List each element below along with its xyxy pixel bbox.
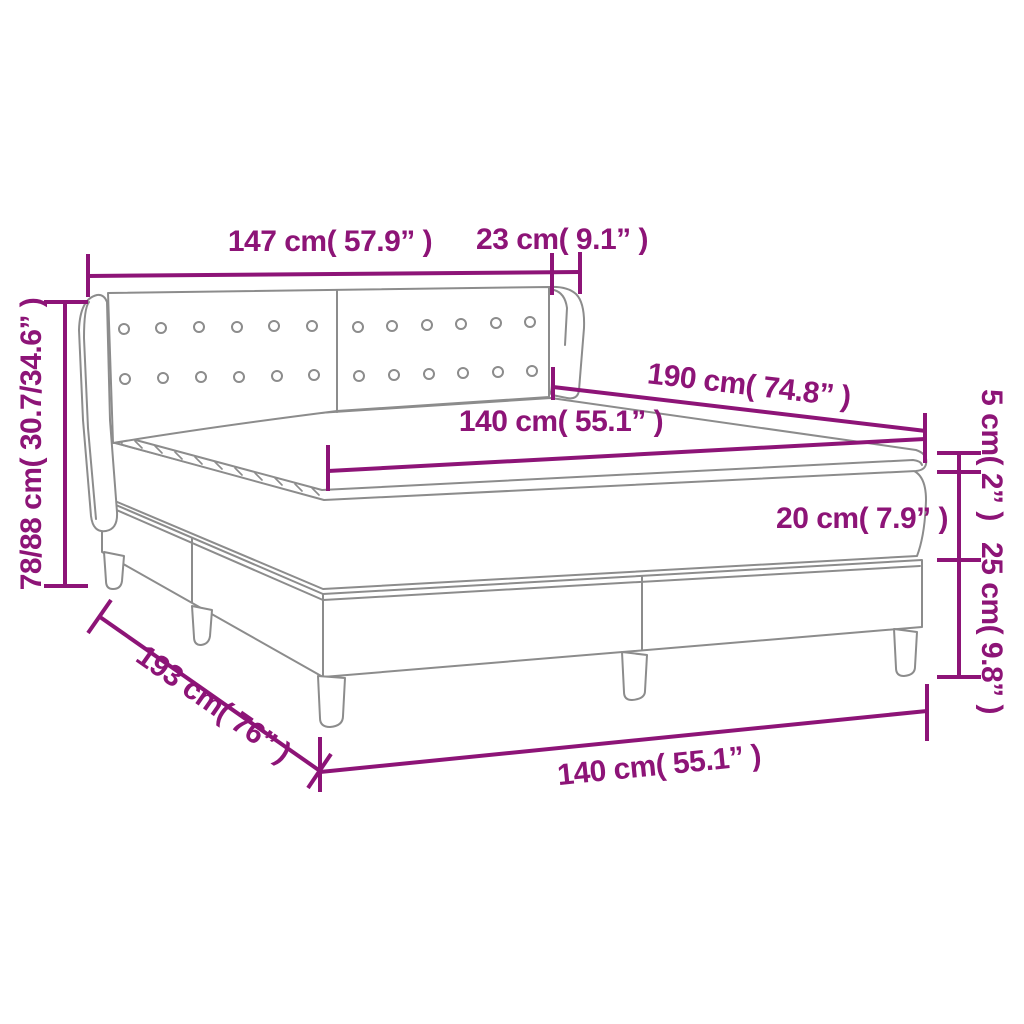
dim-label-topper-thickness: 5 cm( 2” ) (975, 389, 1008, 521)
dim-label-headboard-width: 147 cm( 57.9” ) (228, 225, 432, 258)
dim-label-mattress-thickness: 20 cm( 7.9” ) (776, 502, 948, 535)
dim-headboard-width: 147 cm( 57.9” ) 23 cm( 9.1” ) (88, 223, 648, 297)
bed-leg (622, 652, 647, 700)
dim-label-headboard-side-depth: 23 cm( 9.1” ) (476, 223, 648, 256)
dim-label-base-height: 25 cm( 9.8” ) (975, 542, 1008, 714)
dim-label-mattress-width: 140 cm( 55.1” ) (459, 405, 663, 438)
bed-dimension-diagram: 147 cm( 57.9” ) 23 cm( 9.1” ) 78/88 cm( … (0, 0, 1024, 1024)
bed-leg (894, 629, 917, 676)
dim-bed-height: 78/88 cm( 30.7/34.6” ) (15, 298, 88, 591)
bed-leg (318, 676, 345, 727)
dim-label-bed-height: 78/88 cm( 30.7/34.6” ) (15, 298, 48, 591)
diagram-canvas: 147 cm( 57.9” ) 23 cm( 9.1” ) 78/88 cm( … (0, 0, 1024, 1024)
dim-base-width: 140 cm( 55.1” ) (320, 684, 927, 792)
bed-leg (104, 552, 124, 589)
dim-label-mattress-length: 190 cm( 74.8” ) (646, 357, 853, 414)
bed-leg (192, 606, 212, 645)
dim-label-base-length: 193 cm( 76” ) (130, 639, 297, 769)
